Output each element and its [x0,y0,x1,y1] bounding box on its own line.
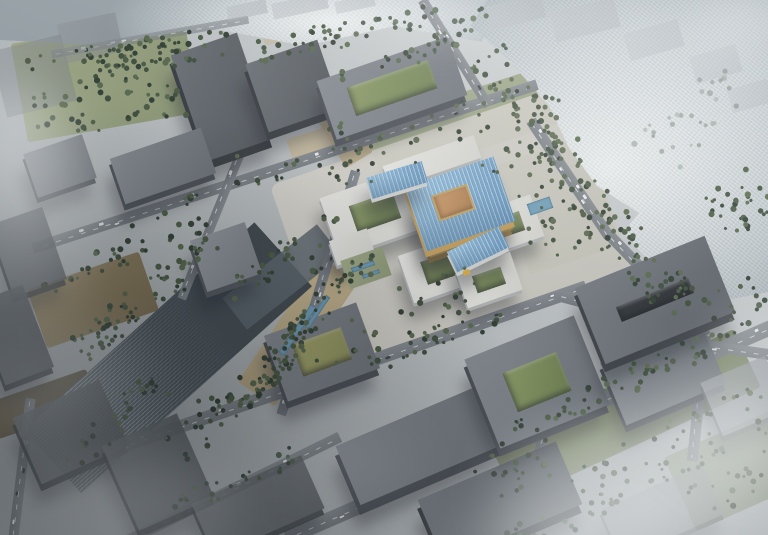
cloud [292,0,572,53]
cloud [697,287,768,377]
cloud [0,63,73,233]
aerial-masterplan-rendering [0,0,768,535]
cloud [227,417,437,507]
cloud-layer [0,0,768,535]
cloud [430,485,690,535]
cloud [0,427,263,535]
cloud [672,0,768,63]
